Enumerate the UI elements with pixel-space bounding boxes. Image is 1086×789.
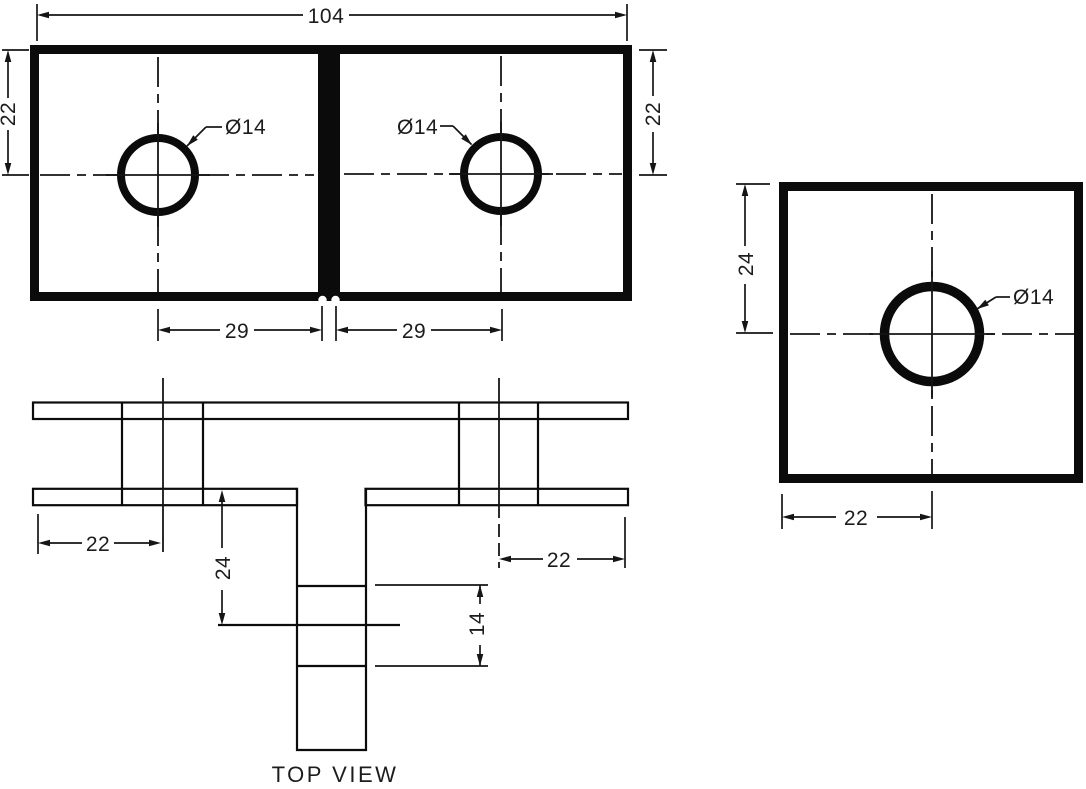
side-hole-callout: Ø14: [977, 286, 1054, 309]
side-view: 24 22 Ø14: [735, 184, 1079, 530]
dim-text-height-left: 22: [0, 102, 20, 126]
top-stem-outline: [297, 489, 366, 750]
front-center-divider: [318, 45, 340, 301]
hole-label-right: Ø14: [397, 116, 438, 139]
cad-drawing: 104 22 22 2: [0, 0, 1086, 784]
top-rail-lower-right: [366, 489, 629, 505]
dim-text-overall-width: 104: [308, 5, 345, 28]
top-rail-lower-left: [33, 489, 297, 505]
dim-text-top-left-tab: 22: [86, 533, 110, 556]
hole-label-left: Ø14: [225, 116, 266, 139]
dim-text-top-right-tab: 22: [547, 549, 571, 572]
dim-text-side-center-from-left: 22: [844, 507, 868, 530]
dim-top-right-tab: 22: [499, 517, 625, 572]
view-title: TOP VIEW: [272, 762, 399, 784]
dim-hole-center-right: 29: [336, 306, 502, 343]
drawing-sheet: 104 22 22 2: [0, 0, 1086, 784]
dim-text-height-right: 22: [642, 102, 665, 126]
dim-side-center-from-left: 22: [782, 491, 932, 530]
dim-text-hole-center-right: 29: [402, 320, 426, 343]
dim-side-center-from-top: 24: [735, 184, 773, 333]
divider-notch-left: [318, 296, 326, 304]
dim-text-top-stem-depth: 24: [212, 556, 235, 580]
dim-overall-width: 104: [37, 4, 627, 41]
side-hole-label: Ø14: [1013, 286, 1054, 309]
dim-top-left-tab: 22: [38, 514, 161, 556]
dim-height-left: 22: [0, 50, 29, 175]
dim-hole-center-left: 29: [158, 306, 322, 343]
dim-text-top-stem-hole: 14: [466, 612, 489, 636]
dim-height-right: 22: [639, 50, 667, 175]
dim-text-hole-center-left: 29: [225, 320, 249, 343]
hole-callout-left: Ø14: [187, 116, 266, 146]
dim-top-stem-depth: 24: [212, 490, 235, 625]
divider-notch-right: [331, 296, 339, 304]
front-view: [35, 45, 628, 304]
hole-callout-right: Ø14: [397, 116, 472, 145]
dim-text-side-center-from-top: 24: [735, 252, 758, 276]
top-view: 22 24 14 22 TOP VIEW: [33, 378, 628, 784]
